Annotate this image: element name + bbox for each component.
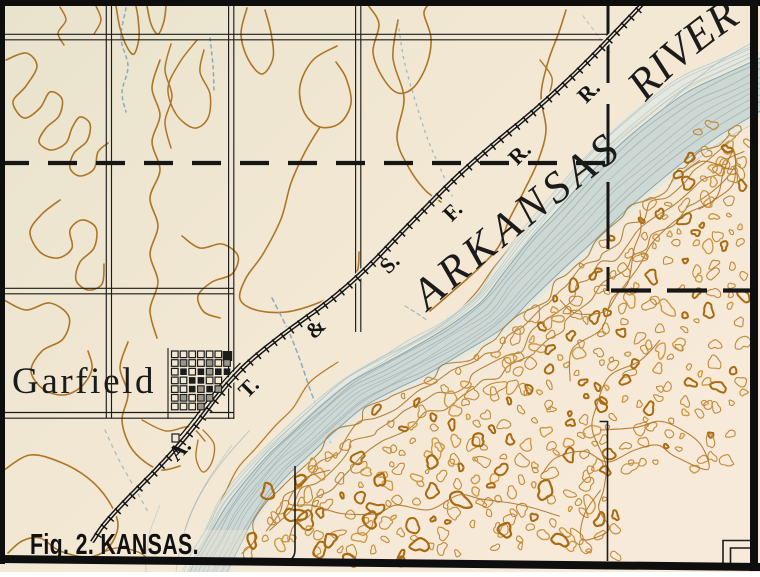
svg-text:Garfield: Garfield <box>12 361 156 402</box>
